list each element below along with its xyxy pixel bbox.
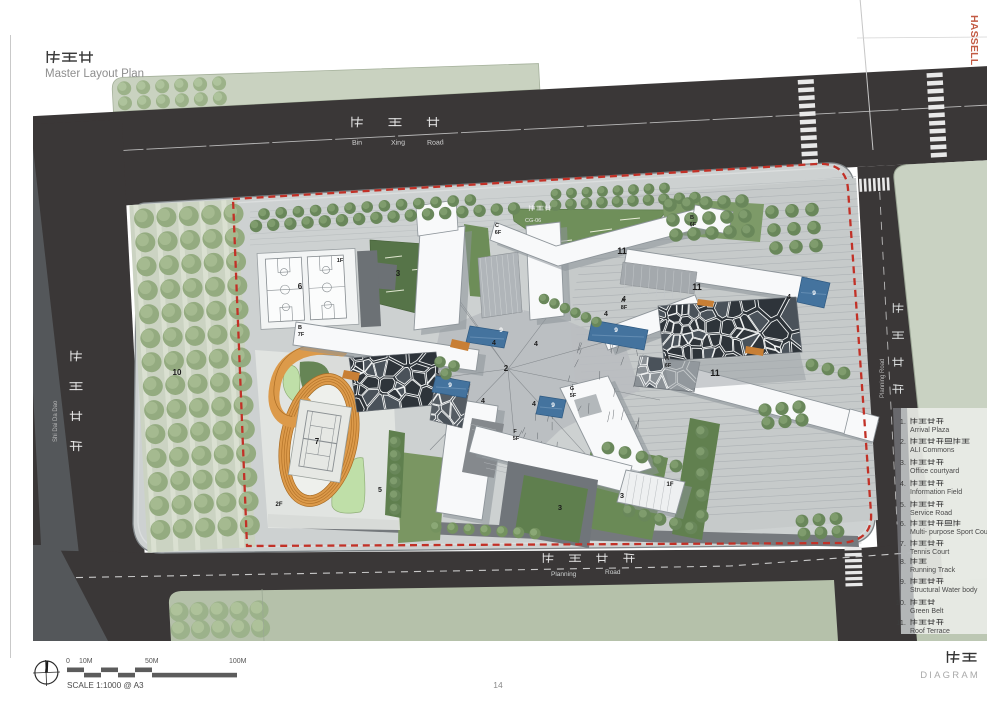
svg-text:1.: 1. [900, 417, 906, 426]
svg-text:5F: 5F [513, 436, 520, 442]
svg-text:CG-06: CG-06 [525, 218, 541, 224]
svg-text:4: 4 [481, 398, 485, 405]
svg-text:2: 2 [504, 364, 509, 373]
svg-text:HASSELL: HASSELL [968, 15, 980, 66]
svg-text:8F: 8F [621, 305, 628, 311]
svg-text:Multi- purpose Sport Court: Multi- purpose Sport Court [910, 529, 987, 536]
svg-text:Green Belt: Green Belt [910, 608, 944, 615]
svg-text:Master Layout Plan: Master Layout Plan [45, 68, 144, 80]
svg-text:6: 6 [298, 282, 303, 291]
svg-text:3.: 3. [900, 458, 906, 467]
svg-text:1F: 1F [337, 258, 344, 264]
svg-text:11: 11 [692, 282, 702, 292]
svg-text:Tennis Court: Tennis Court [910, 549, 949, 556]
svg-text:Xing: Xing [391, 139, 405, 147]
svg-text:5F: 5F [570, 393, 577, 399]
svg-text:Planning: Planning [551, 571, 577, 578]
svg-text:B: B [298, 325, 302, 331]
svg-text:9: 9 [551, 402, 555, 409]
svg-text:Service Road: Service Road [910, 510, 952, 517]
svg-text:7F: 7F [298, 332, 305, 338]
svg-text:DIAGRAM: DIAGRAM [920, 670, 980, 681]
svg-text:5.: 5. [900, 500, 906, 509]
svg-text:50M: 50M [145, 658, 159, 665]
svg-text:3: 3 [396, 269, 401, 278]
svg-text:Arrival Plaza: Arrival Plaza [910, 427, 949, 434]
svg-text:Road: Road [605, 569, 621, 576]
svg-text:3: 3 [620, 491, 624, 500]
svg-text:Running Track: Running Track [910, 567, 956, 574]
svg-text:Structural Water body: Structural Water body [910, 587, 978, 594]
svg-text:6F: 6F [665, 363, 672, 369]
svg-text:11: 11 [617, 246, 627, 256]
svg-text:7: 7 [315, 437, 320, 446]
svg-text:11: 11 [710, 368, 720, 378]
svg-text:Shi Dai Da Dao: Shi Dai Da Dao [53, 400, 59, 442]
svg-text:Bin: Bin [352, 140, 363, 147]
svg-text:7.: 7. [900, 539, 906, 548]
svg-text:10.: 10. [896, 598, 906, 607]
svg-text:1F: 1F [666, 482, 673, 488]
svg-text:9: 9 [812, 290, 816, 297]
svg-text:Information Field: Information Field [910, 489, 962, 496]
svg-text:H: H [665, 356, 669, 362]
svg-text:Roof Terrace: Roof Terrace [910, 628, 950, 635]
svg-text:4: 4 [532, 401, 536, 408]
svg-text:4: 4 [604, 311, 608, 318]
svg-text:3: 3 [558, 503, 562, 512]
svg-text:Planning Road: Planning Road [880, 359, 886, 398]
svg-text:6.: 6. [900, 519, 906, 528]
svg-text:G: G [570, 386, 574, 392]
svg-text:8.: 8. [900, 557, 906, 566]
svg-text:14: 14 [493, 680, 503, 690]
svg-text:6F: 6F [690, 222, 697, 228]
svg-text:SCALE 1:1000 @ A3: SCALE 1:1000 @ A3 [67, 681, 144, 690]
svg-text:10M: 10M [79, 658, 93, 665]
svg-text:4: 4 [787, 294, 791, 301]
svg-text:4: 4 [492, 340, 496, 347]
svg-text:9: 9 [499, 327, 503, 334]
svg-text:5: 5 [378, 487, 382, 494]
svg-text:6F: 6F [495, 230, 502, 236]
svg-text:0: 0 [66, 658, 70, 665]
svg-text:10: 10 [173, 368, 182, 377]
svg-text:9: 9 [614, 327, 618, 334]
svg-text:9: 9 [448, 382, 452, 389]
svg-text:2.: 2. [900, 437, 906, 446]
svg-text:2F: 2F [275, 502, 282, 508]
svg-text:4.: 4. [900, 479, 906, 488]
svg-text:Office courtyard: Office courtyard [910, 468, 959, 475]
svg-text:9.: 9. [900, 577, 906, 586]
svg-text:B: B [690, 215, 694, 221]
svg-text:100M: 100M [229, 658, 247, 665]
svg-text:11.: 11. [896, 618, 906, 627]
svg-text:Road: Road [427, 139, 444, 147]
svg-text:A: A [621, 298, 625, 304]
svg-text:4: 4 [534, 341, 538, 348]
svg-text:ALI Commons: ALI Commons [910, 447, 955, 454]
svg-text:C: C [495, 223, 499, 229]
